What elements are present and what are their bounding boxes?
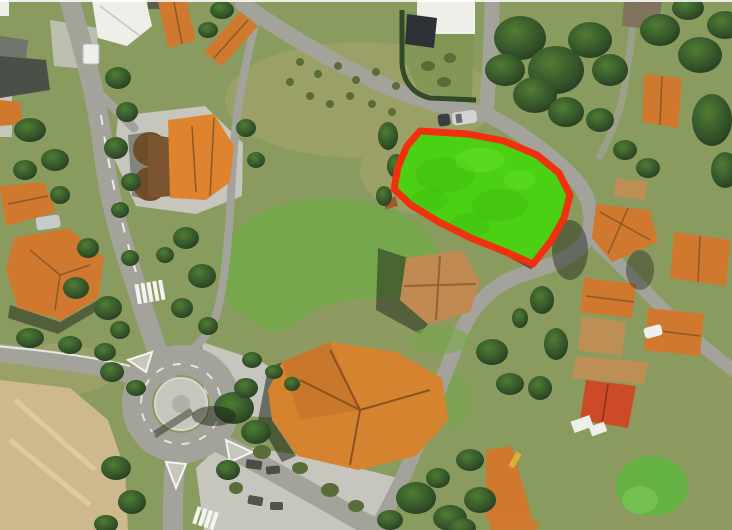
tree — [247, 152, 265, 168]
tree — [396, 482, 436, 514]
plaza-tree — [292, 462, 308, 474]
plant-dot — [326, 100, 334, 108]
tree — [586, 108, 614, 132]
car-windshield — [455, 113, 462, 123]
satellite-map-view[interactable] — [0, 0, 732, 530]
tree — [105, 67, 131, 89]
tree — [544, 328, 568, 360]
plaza-tree — [229, 482, 243, 494]
tree — [173, 227, 199, 249]
hedge-bush — [265, 365, 283, 379]
tan-house-r5 — [578, 316, 626, 356]
plant-dot — [346, 92, 354, 100]
plant-dot — [368, 100, 376, 108]
building-shadow — [626, 250, 654, 290]
bright-green-bush — [622, 486, 658, 514]
tree — [50, 186, 70, 204]
plaza-tree — [348, 500, 364, 512]
tree-shadow-roundabout — [192, 406, 236, 426]
tree — [63, 277, 89, 299]
tree — [210, 1, 234, 19]
image-border-top — [0, 0, 732, 2]
tree — [236, 119, 256, 137]
tree — [592, 54, 628, 86]
tree — [41, 149, 69, 171]
tree — [234, 378, 258, 398]
tree — [613, 140, 637, 160]
tree — [111, 202, 129, 218]
tree — [692, 94, 732, 146]
chapel-roof-center — [148, 134, 172, 198]
dark-car — [437, 113, 451, 127]
parked-car — [270, 502, 283, 510]
tree — [16, 328, 44, 348]
tree — [58, 336, 82, 354]
dark-roof-panel — [405, 14, 437, 48]
tree — [104, 137, 128, 159]
tree — [496, 373, 524, 395]
tree — [110, 321, 130, 339]
tree — [116, 102, 138, 122]
tree — [530, 286, 554, 314]
tree — [241, 420, 271, 444]
tree — [188, 264, 216, 288]
garden-bush — [437, 77, 451, 87]
tree — [485, 54, 525, 86]
plant-dot — [306, 92, 314, 100]
white-truck — [83, 44, 99, 64]
tree — [126, 380, 146, 396]
tree — [464, 487, 496, 513]
parked-car — [266, 465, 281, 474]
tree — [14, 118, 46, 142]
tree — [118, 490, 146, 514]
tree — [13, 160, 37, 180]
plant-dot — [352, 76, 360, 84]
tree — [156, 247, 174, 263]
hedge-bush — [284, 377, 300, 391]
tree — [94, 343, 116, 361]
parcel-texture — [455, 148, 505, 172]
tree — [476, 339, 508, 365]
plaza-tree — [253, 445, 271, 459]
plant-dot — [296, 58, 304, 66]
plant-dot — [372, 68, 380, 76]
tree — [512, 308, 528, 328]
tree — [77, 238, 99, 258]
road-north-vertical — [486, 0, 492, 112]
white-corner-structure — [0, 0, 9, 16]
tree — [198, 22, 218, 38]
tree — [378, 122, 398, 150]
tree — [426, 468, 450, 488]
plant-dot — [334, 62, 342, 70]
parcel-texture — [504, 170, 536, 190]
tree — [678, 37, 722, 73]
tree — [377, 510, 403, 530]
tree — [376, 186, 392, 206]
tree — [94, 296, 122, 320]
tree — [636, 158, 660, 178]
plant-dot — [388, 108, 396, 116]
tree — [121, 250, 139, 266]
plant-dot — [314, 70, 322, 78]
tree — [100, 362, 124, 382]
tree — [101, 456, 131, 480]
plaza-tree — [321, 483, 339, 497]
plant-dot — [286, 78, 294, 86]
tree — [528, 376, 552, 400]
tree — [640, 14, 680, 46]
garden-bush — [444, 53, 456, 63]
tree — [198, 317, 218, 335]
tree — [216, 460, 240, 480]
tree — [121, 173, 141, 191]
hedge-bush — [242, 352, 262, 368]
tree — [568, 22, 612, 58]
garden-south-of-house — [410, 326, 470, 354]
tree — [548, 97, 584, 127]
plant-dot — [392, 82, 400, 90]
tree — [456, 449, 484, 471]
tree — [171, 298, 193, 318]
garden-bush — [421, 61, 435, 71]
